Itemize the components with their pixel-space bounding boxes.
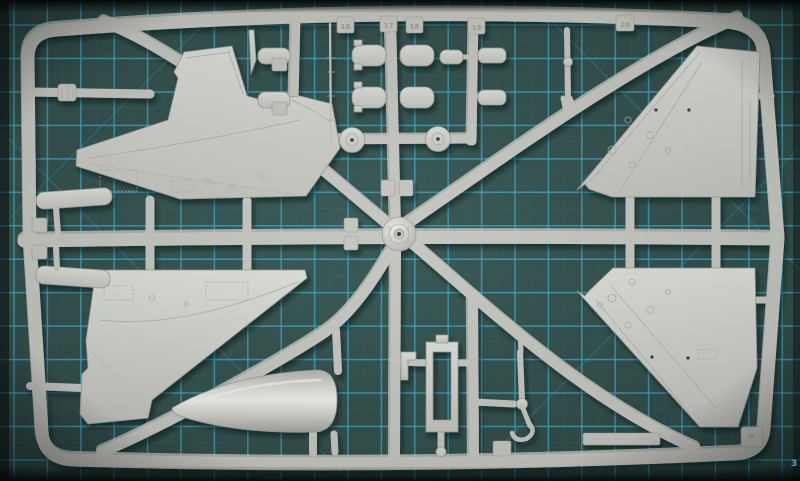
mat-edge-number: 3 — [791, 459, 797, 469]
sprue-photo-canvas: 16 17 18 19 20 — [0, 0, 800, 481]
vignette — [0, 0, 800, 481]
photo-lighting: 3 — [0, 0, 800, 481]
bottom-edge-shadow — [0, 466, 800, 481]
left-edge-shadow — [0, 0, 9, 481]
top-edge-shadow — [0, 0, 800, 13]
right-edge-shadow — [793, 0, 800, 481]
sprue-photo: 16 17 18 19 20 — [0, 0, 800, 481]
